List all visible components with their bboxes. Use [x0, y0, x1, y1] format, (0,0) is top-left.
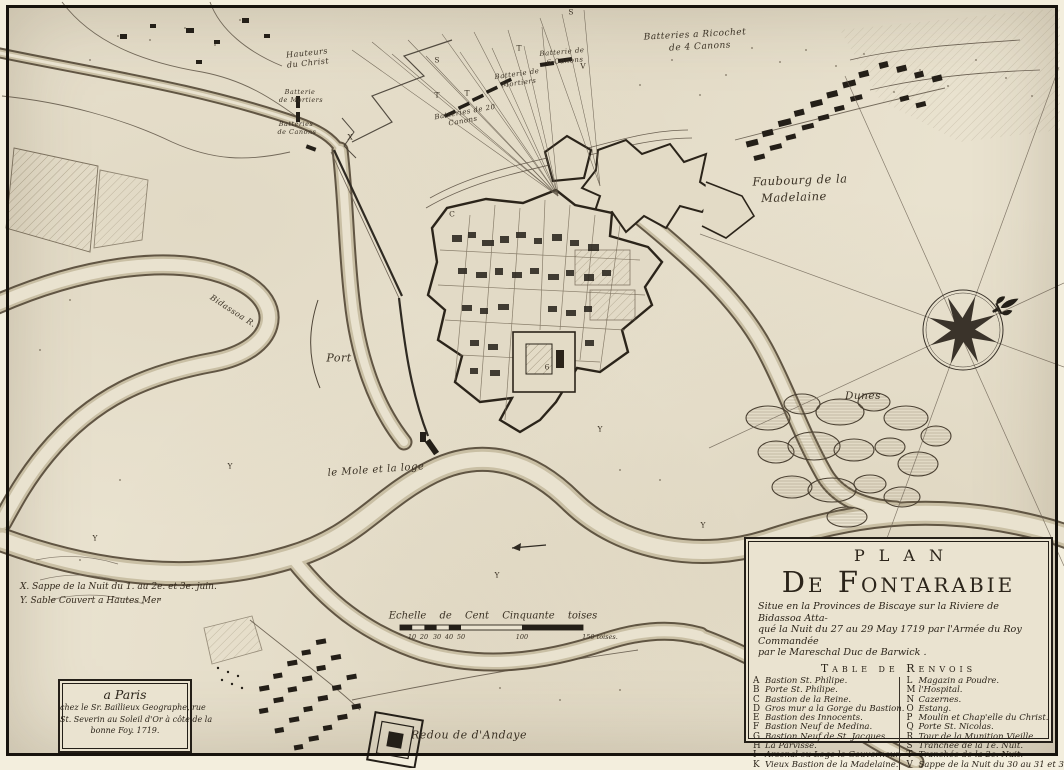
legend-title: Table de Renvois: [746, 662, 1051, 675]
note-x: X. Sappe de la Nuit du 1. au 2e. et 3e. …: [20, 580, 217, 594]
legend-column-right: LMagazin a Poudre.Ml'Hospital.NCazernes.…: [899, 677, 1052, 770]
scale-tick: 30: [433, 633, 441, 641]
scale-tick: 40: [445, 633, 453, 641]
publisher-line1: a Paris: [60, 687, 190, 702]
scale-tick: 100: [516, 633, 528, 641]
map-title-line1: Plan: [746, 546, 1051, 565]
map-subtitle-line1: Situe en la Provinces de Biscaye sur la …: [758, 601, 1041, 624]
map-subtitle-line2: qué la Nuit du 27 au 29 May 1719 par l'A…: [758, 624, 1041, 647]
legend-entry: KVieux Bastion de la Madelaine.: [753, 761, 899, 770]
publisher-line3: St. Severin au Soleil d'Or à côte de la: [60, 714, 190, 726]
legend-entry: VSappe de la Nuit du 30 au 31 et 3 juin.: [907, 761, 1052, 770]
scale-tick: 10: [408, 633, 416, 641]
legend-column-left: ABastion St. Philipe.BPorte St. Philipe.…: [746, 677, 899, 770]
publisher-line2: chez le Sr. Baillieux Geographe, rue: [60, 702, 190, 714]
map-subtitle-line3: par le Mareschal Duc de Barwick .: [758, 647, 1041, 659]
title-cartouche: Plan De Fontarabie Situe en la Provinces…: [744, 537, 1053, 743]
scale-tick: 150 toises.: [582, 633, 618, 641]
map-title-line2: De Fontarabie: [746, 566, 1051, 598]
scale-tick: 20: [420, 633, 428, 641]
publisher-cartouche: a Paris chez le Sr. Baillieux Geographe,…: [58, 679, 192, 753]
note-y: Y. Sable Couvert a Hautes Mer: [20, 594, 217, 608]
publisher-line4: bonne Foy. 1719.: [60, 725, 190, 737]
margin-notes: X. Sappe de la Nuit du 1. au 2e. et 3e. …: [20, 580, 217, 608]
scale-tick: 50: [457, 633, 465, 641]
